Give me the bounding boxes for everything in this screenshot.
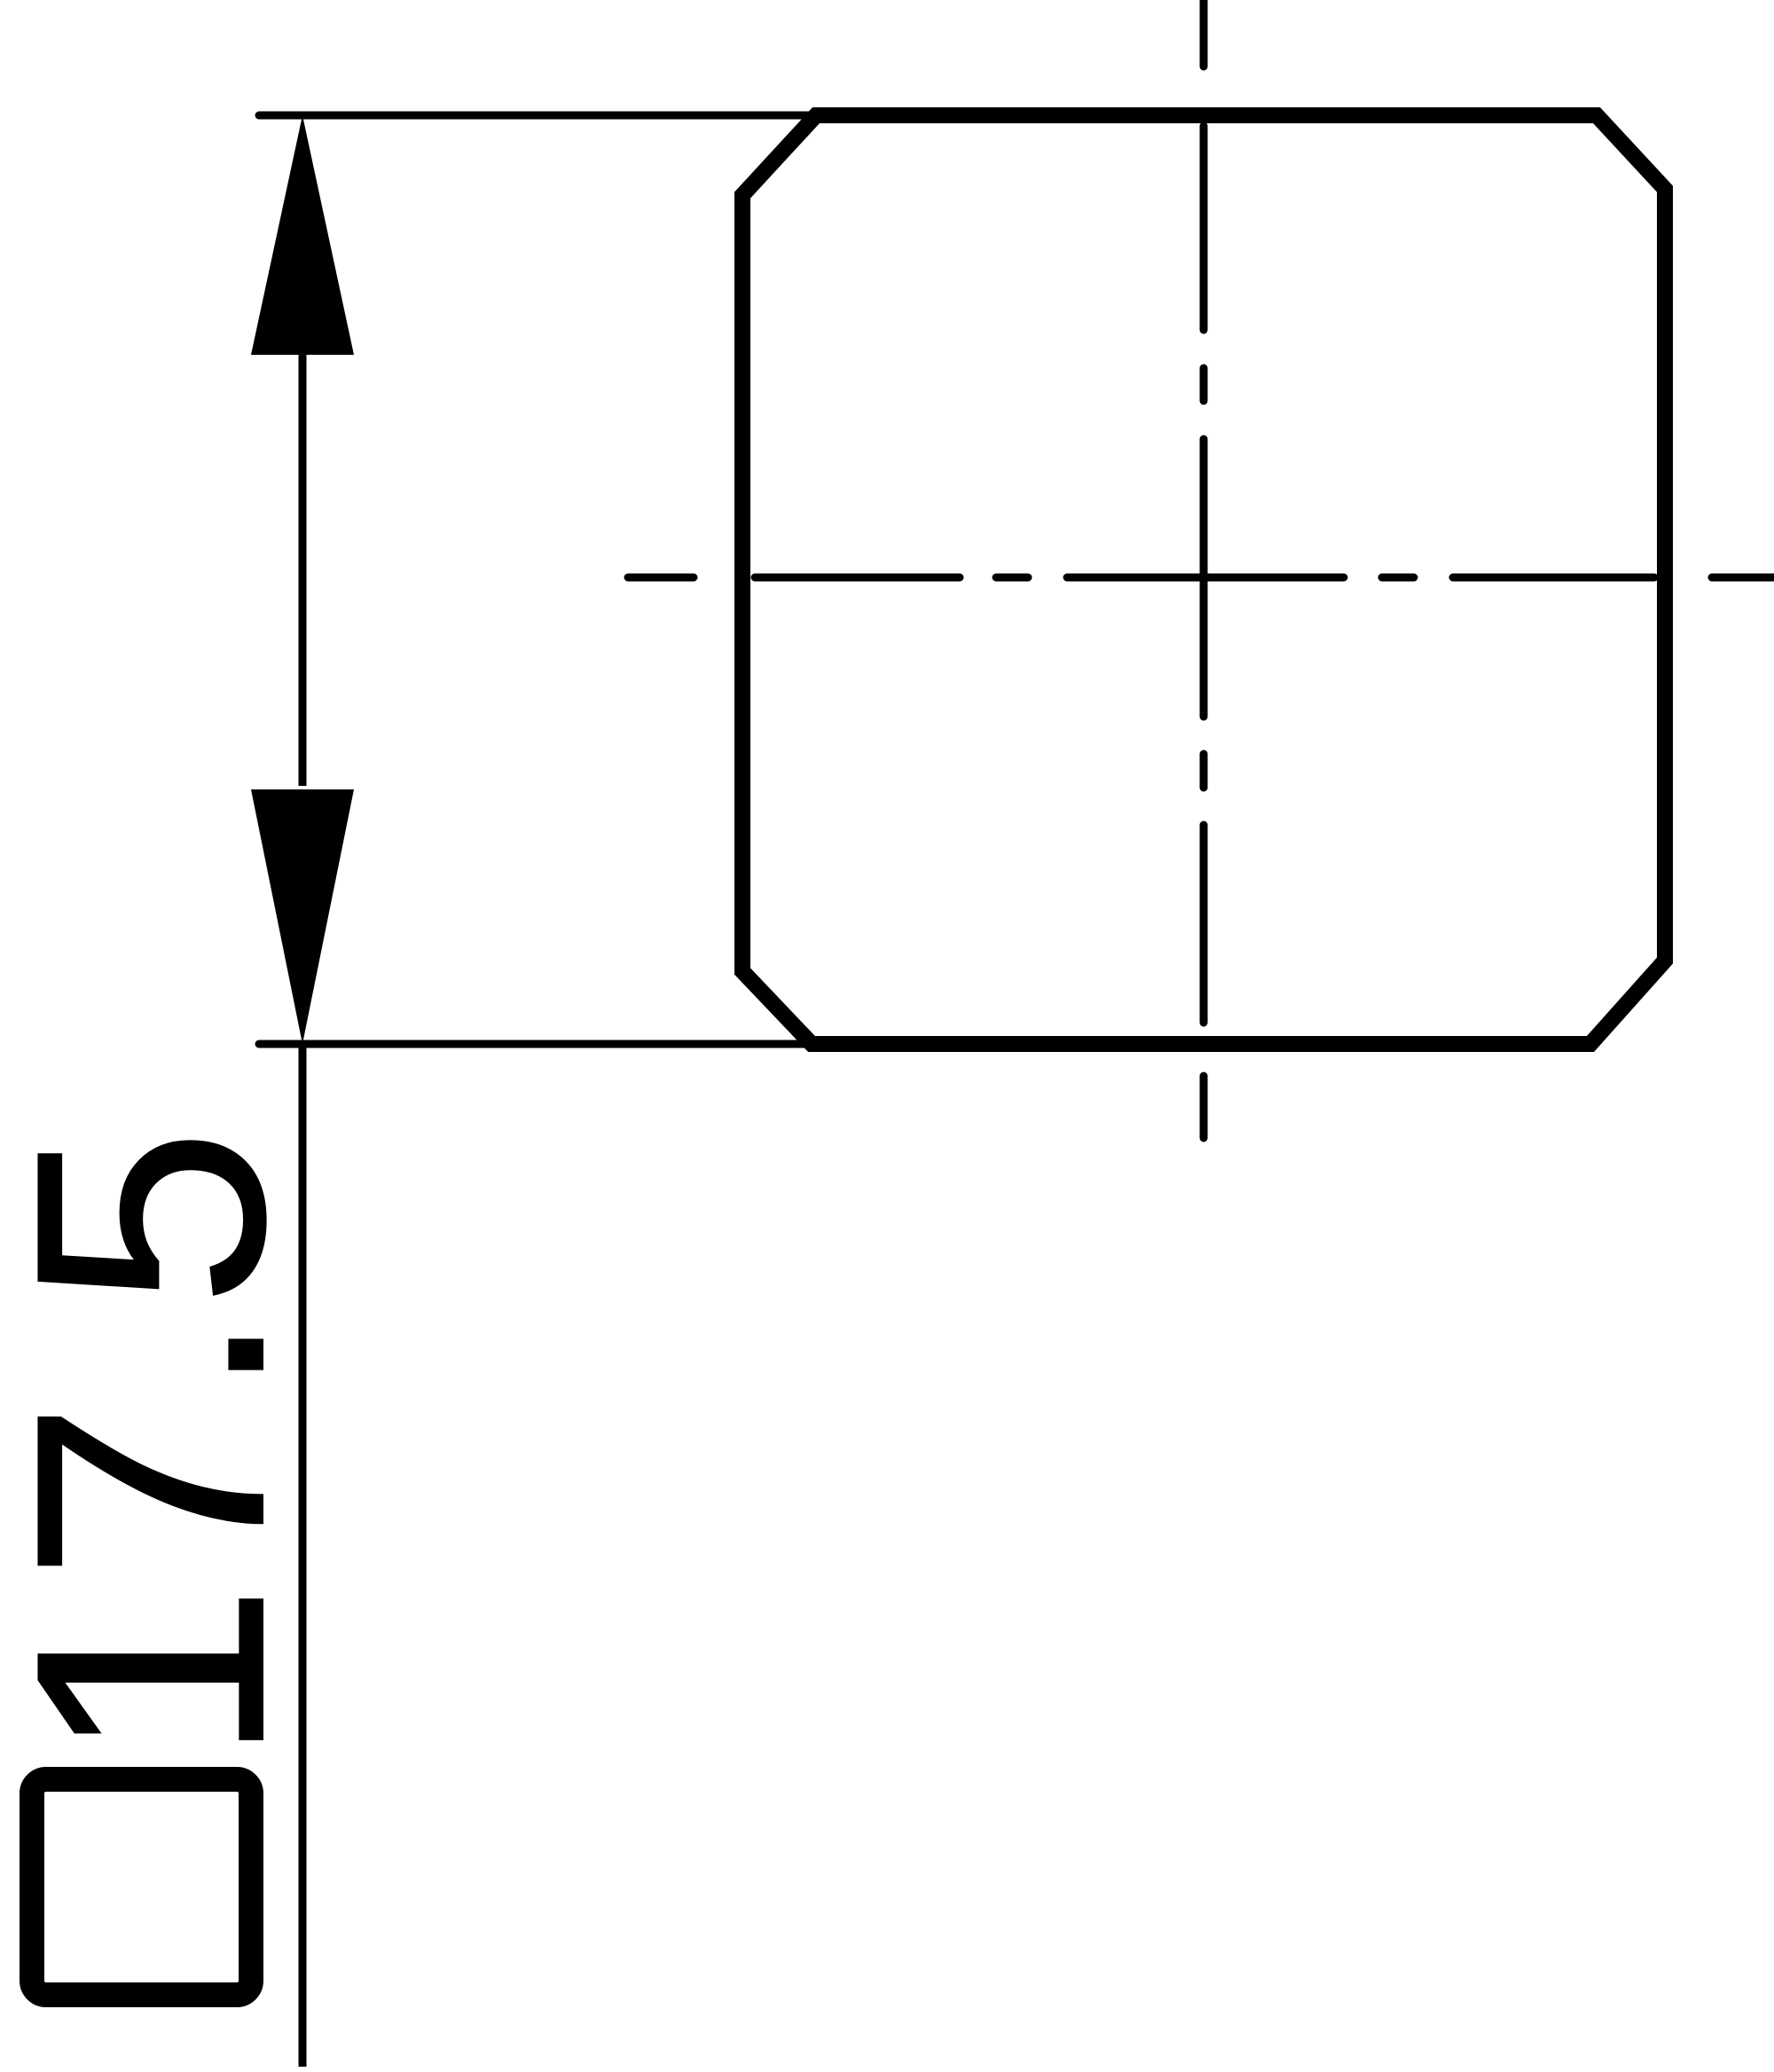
- square-face-technical-drawing: 17.5: [0, 0, 1774, 2072]
- dimension-text: 17.5: [0, 1126, 334, 1765]
- square-symbol-icon: [32, 1779, 251, 1995]
- drawing-sheet: 17.5: [0, 0, 1774, 2072]
- dimension-arrow-down-icon: [251, 789, 354, 1044]
- dimension-arrow-up-icon: [251, 115, 354, 355]
